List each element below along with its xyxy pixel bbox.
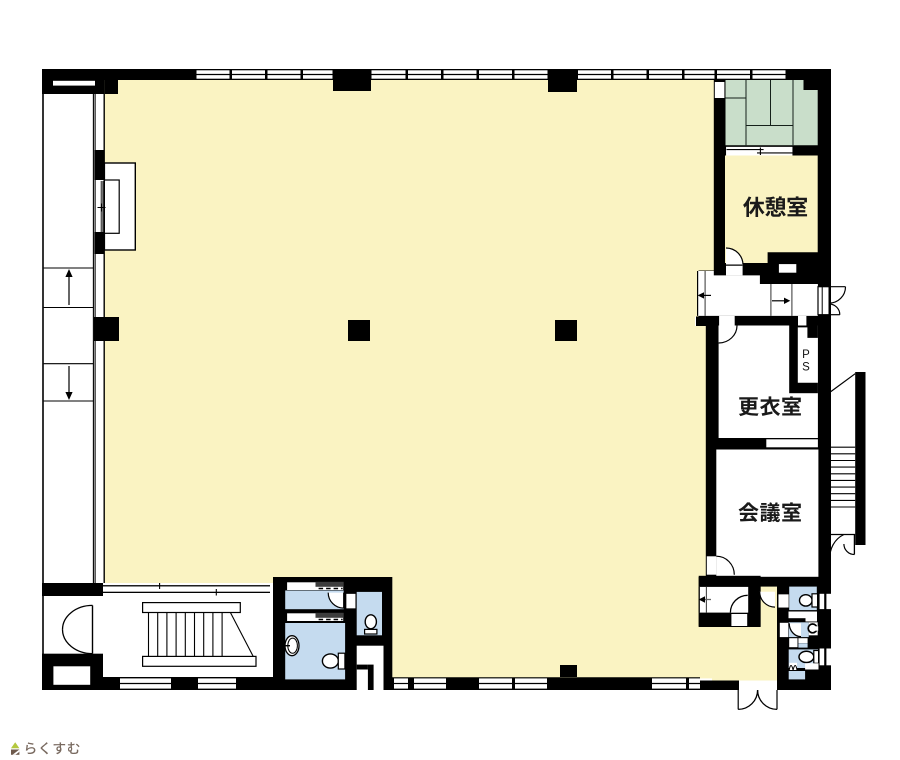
svg-text:S: S — [802, 362, 810, 374]
svg-text:P: P — [802, 349, 810, 361]
